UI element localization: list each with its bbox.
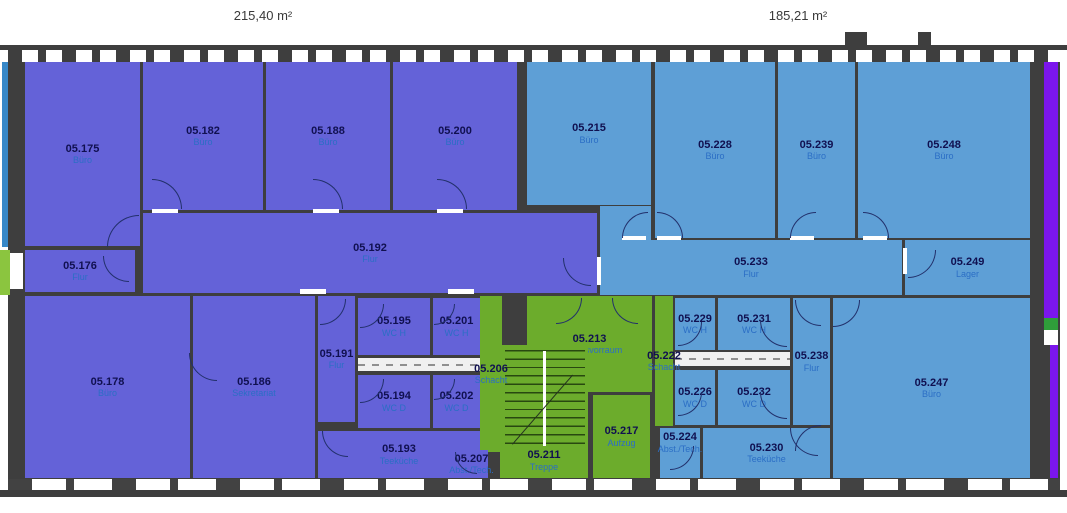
adjacent-strip-green [1044,318,1058,330]
room-05-239: 05.239Büro [778,62,855,238]
room-05-228: 05.228Büro [655,62,775,238]
top-window-band [8,50,1060,62]
room-05-215: 05.215Büro [527,62,651,205]
wc-corridor-walkline [675,352,790,366]
door-opening [437,209,463,213]
door-opening [903,248,907,274]
room-05-206: 05.206Schacht [480,296,502,452]
room-05-248: 05.248Büro [858,62,1030,238]
door-opening [448,289,474,294]
area-label-right-unit: 185,21 m² [769,8,828,23]
room-05-233: 05.233Flur [600,240,902,295]
room-05-247: 05.247Büro [833,298,1030,478]
stair-flight-divider [543,351,546,446]
room-05-222: 05.222Schacht [655,296,673,426]
floor-plan: 215,40 m² 185,21 m² 05.175Büro 05.182Bür… [0,0,1067,513]
adjacent-strip-violet [1044,62,1058,318]
door-opening [152,209,178,213]
area-label-left-unit: 215,40 m² [234,8,293,23]
adjacent-strip-lime [0,250,10,295]
adjacent-strip-teal [2,62,8,247]
facade-pier [918,32,931,46]
left-wall-window [10,253,23,289]
room-05-178: 05.178Büro [25,296,190,478]
room-05-192: 05.192Flur [143,213,597,293]
room-05-217: 05.217Aufzug [593,395,650,478]
room-05-186: 05.186Sekretariat [193,296,315,478]
wc-corridor-walkline [358,358,480,371]
bottom-window-band [8,479,1060,490]
facade-pier [845,32,867,46]
right-wall-window [1044,330,1058,345]
bottom-facade-edge [0,490,1067,497]
door-opening [313,209,339,213]
adjacent-strip-violet [1050,345,1058,478]
door-opening [300,289,326,294]
door-opening [597,257,601,285]
